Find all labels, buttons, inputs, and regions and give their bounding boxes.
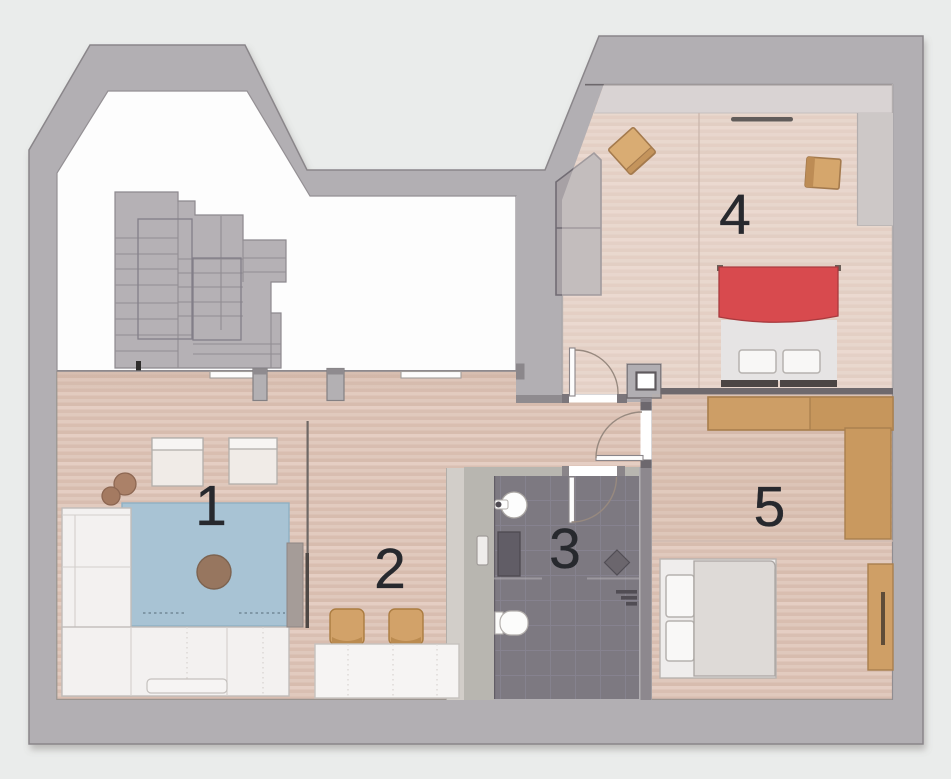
svg-text:2: 2 — [374, 537, 406, 601]
svg-text:3: 3 — [549, 517, 581, 581]
svg-text:5: 5 — [754, 475, 786, 539]
svg-text:1: 1 — [195, 474, 227, 538]
svg-text:4: 4 — [719, 183, 751, 247]
